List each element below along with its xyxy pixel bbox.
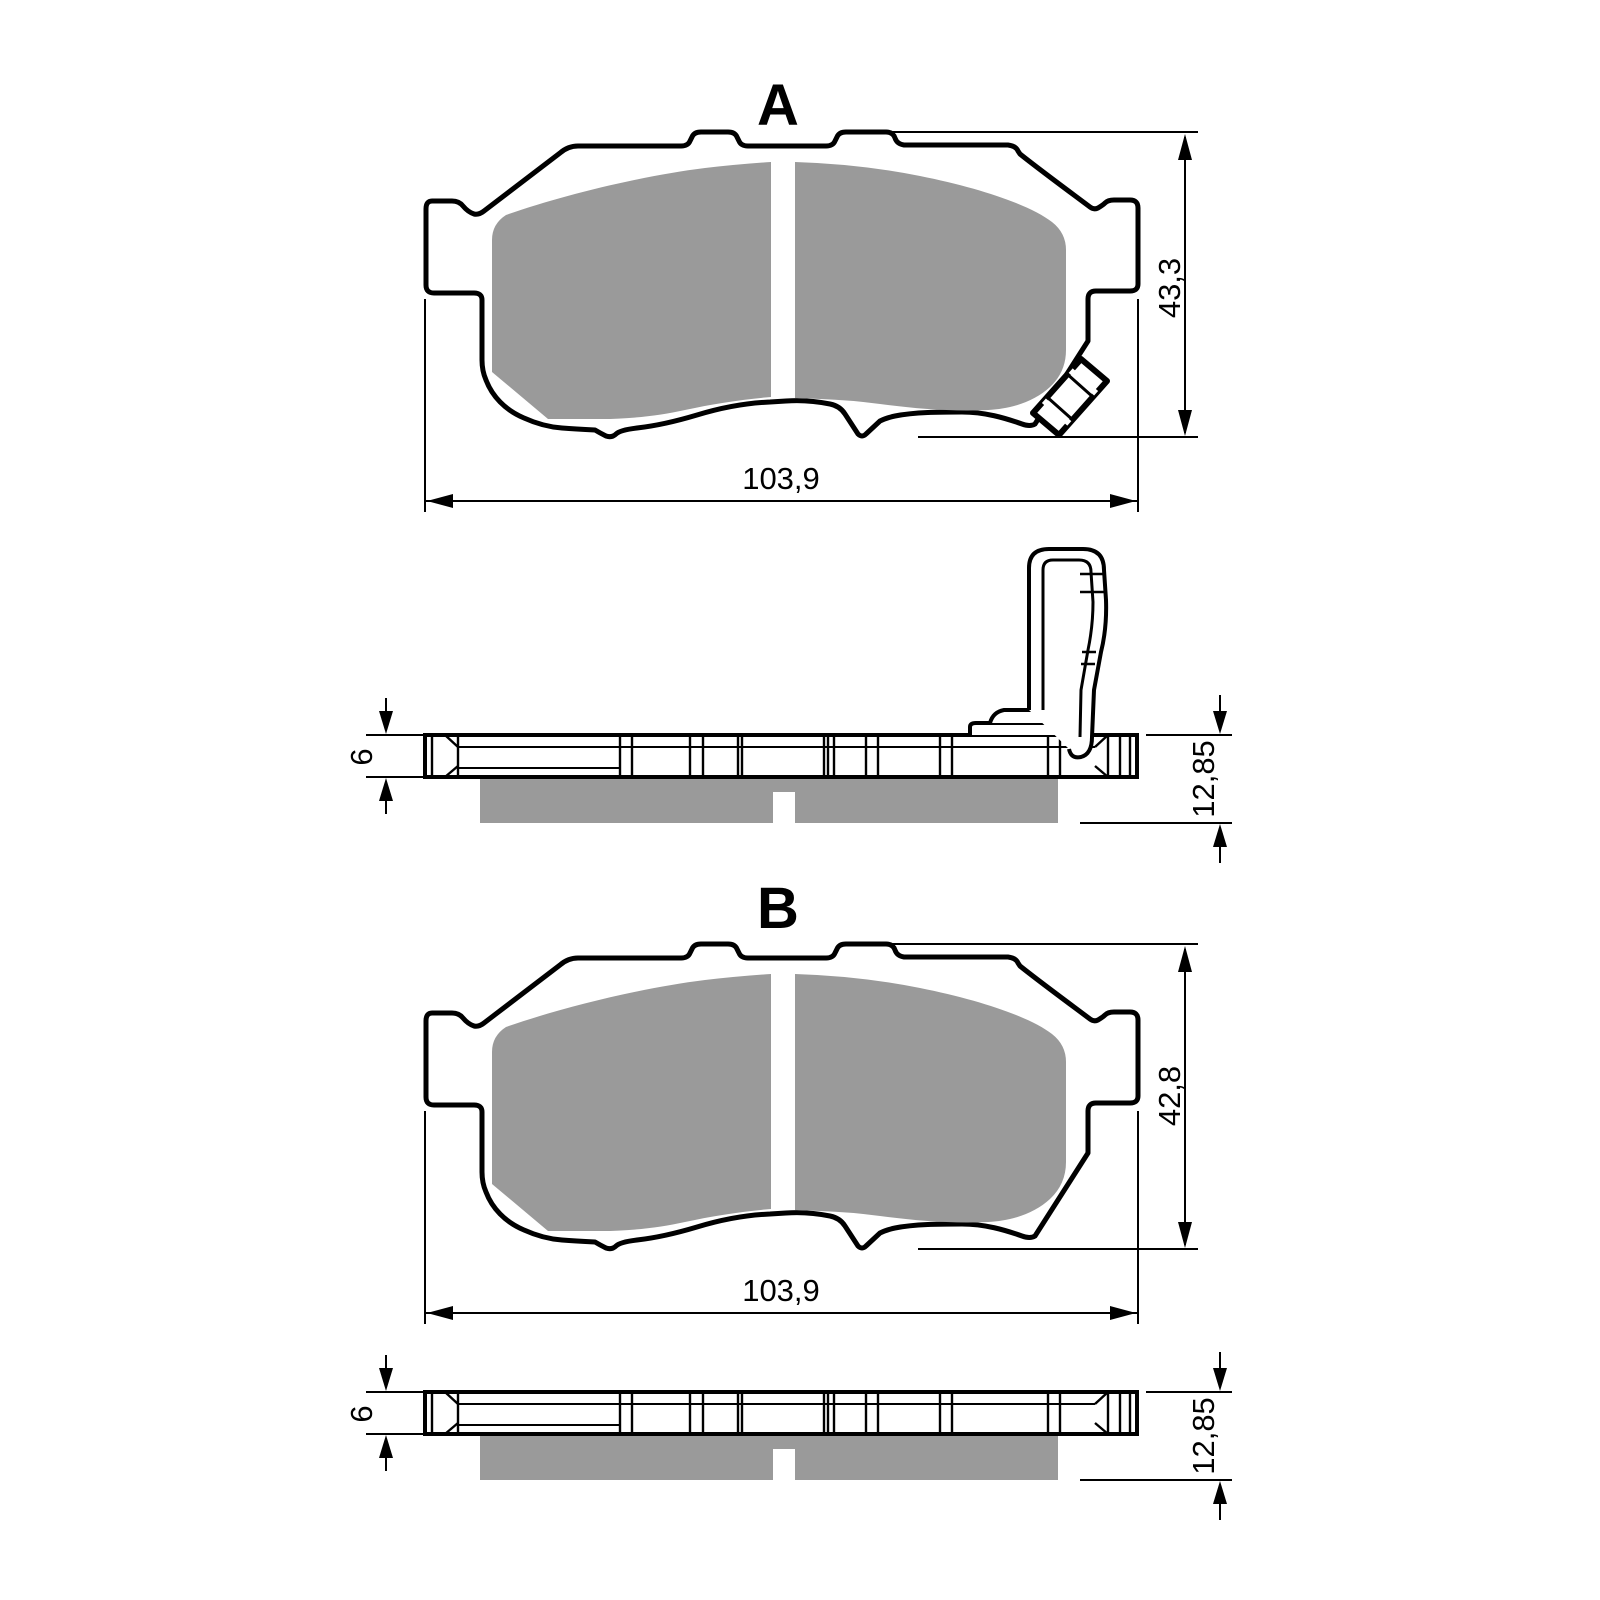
- dim-value-width-b: 103,9: [742, 1273, 820, 1308]
- pad-front-view-b: [426, 944, 1138, 1249]
- dim-value-total-thickness-b: 12,85: [1186, 1397, 1221, 1475]
- side-friction-b: [480, 1435, 1058, 1483]
- dim-value-height-a: 43,3: [1152, 258, 1187, 318]
- retaining-clip-side-a: [970, 549, 1106, 757]
- view-a-label: A: [757, 73, 799, 138]
- dim-value-plate-thickness-b: 6: [344, 1405, 379, 1422]
- side-view-a: 6 12,85: [344, 549, 1232, 863]
- view-b-label: B: [757, 876, 799, 941]
- dim-value-width-a: 103,9: [742, 461, 820, 496]
- view-b: B 42,8 103,9: [425, 876, 1198, 1324]
- dim-value-plate-thickness-a: 6: [344, 748, 379, 765]
- brake-pad-diagram: A 43,3 103,9: [0, 0, 1600, 1600]
- view-a: A 43,3 103,9: [425, 73, 1198, 512]
- side-friction-a: [480, 778, 1058, 826]
- side-band-a: [425, 735, 1137, 777]
- dimension-plate-thickness-a: 6: [344, 698, 428, 814]
- dim-value-total-thickness-a: 12,85: [1186, 740, 1221, 818]
- drawing-canvas: A 43,3 103,9: [0, 0, 1600, 1600]
- dim-value-height-b: 42,8: [1152, 1066, 1187, 1126]
- side-view-b: 6 12,85: [344, 1352, 1232, 1520]
- dimension-plate-thickness-b: 6: [344, 1355, 428, 1471]
- side-band-b: [425, 1392, 1137, 1434]
- pad-front-view-a: [426, 132, 1138, 437]
